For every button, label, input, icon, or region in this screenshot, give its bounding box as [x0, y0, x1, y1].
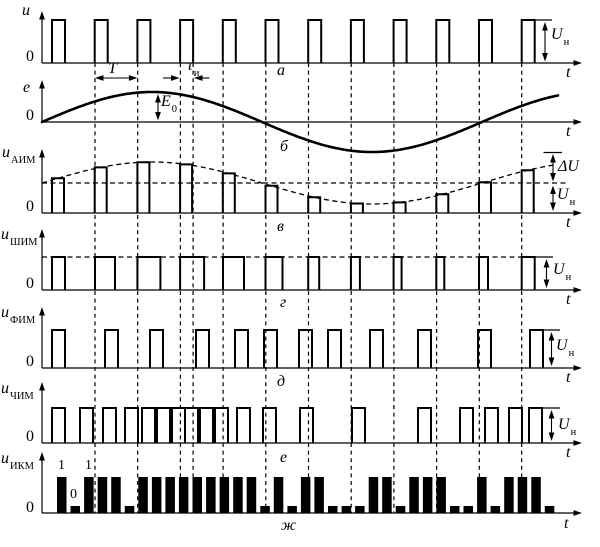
pcm-bit-1	[274, 477, 284, 513]
pulse	[223, 20, 236, 63]
pcm-bit-1	[57, 477, 67, 513]
pulse	[137, 162, 149, 213]
pcm-bit-0	[260, 506, 270, 513]
pulse	[196, 330, 209, 368]
pulse	[266, 186, 278, 213]
panel-ж	[39, 452, 582, 516]
pulse	[95, 20, 108, 63]
pcm-bit-1	[382, 477, 392, 513]
t-axis-label: t	[566, 370, 570, 386]
pcm-bit-1	[531, 477, 541, 513]
pulse	[479, 257, 488, 290]
pcm-bit-1	[518, 477, 528, 513]
panel-г	[39, 229, 582, 293]
pulse	[509, 408, 522, 443]
panel-б	[39, 80, 582, 152]
pulse	[172, 408, 185, 443]
pcm-bit-0	[491, 506, 501, 513]
pulse	[95, 257, 115, 290]
panel-label-e: е	[280, 450, 287, 466]
pulse	[479, 20, 492, 63]
panel-е	[39, 382, 582, 446]
pcm-bit-0	[545, 506, 555, 513]
pulse	[180, 257, 204, 290]
pulse	[150, 330, 163, 368]
pulse	[235, 330, 248, 368]
pcm-bit-1	[165, 477, 175, 513]
pulse	[522, 170, 534, 213]
e0-label: E0	[161, 94, 176, 114]
pulse-modulation-figure: u 0 t T τи Uн а e 0 t E0 б uАИМ 0 t ΔU U…	[0, 0, 600, 547]
pulse	[263, 408, 276, 443]
pulse	[180, 164, 192, 213]
pulse	[52, 330, 65, 368]
pulse	[157, 408, 170, 443]
pulse	[328, 330, 341, 368]
pulse	[478, 330, 491, 368]
pulse	[522, 20, 535, 63]
pulse	[200, 408, 213, 443]
bit-label-1: 1	[58, 459, 65, 473]
delta-u-label: ΔU	[558, 159, 579, 175]
pcm-bit-1	[220, 477, 230, 513]
pulse	[529, 408, 542, 443]
axis-label-u-shim: uШИМ	[1, 227, 37, 247]
un-label-c: Uн	[557, 187, 574, 207]
origin-label: 0	[26, 354, 34, 370]
pulse	[103, 408, 116, 443]
pcm-bit-1	[301, 477, 311, 513]
pulse	[105, 330, 118, 368]
pulse	[436, 20, 449, 63]
origin-label: 0	[26, 199, 34, 215]
pulse	[370, 330, 383, 368]
pcm-bit-1	[98, 477, 108, 513]
origin-label: 0	[26, 49, 34, 65]
pulse	[394, 202, 406, 213]
pulse	[137, 257, 160, 290]
pcm-bit-0	[464, 506, 474, 513]
pulse	[185, 408, 198, 443]
pulse	[394, 257, 402, 290]
pcm-bit-1	[247, 477, 257, 513]
pulse	[479, 182, 491, 213]
pcm-bit-1	[193, 477, 203, 513]
pulse	[237, 408, 250, 443]
pcm-bit-1	[477, 477, 487, 513]
un-label-e: Uн	[556, 338, 573, 358]
pcm-bit-0	[355, 506, 365, 513]
pulse	[95, 167, 107, 213]
t-axis-label: t	[566, 292, 570, 308]
pulse	[215, 408, 228, 443]
pulse	[137, 20, 150, 63]
bit-label-1b: 1	[85, 459, 92, 473]
axis-label-u-fim: uФИМ	[1, 305, 34, 325]
pcm-bit-1	[233, 477, 243, 513]
axis-label-e: e	[23, 80, 30, 96]
panel-label-b: б	[280, 139, 288, 155]
pcm-bit-1	[436, 477, 446, 513]
pcm-bit-1	[138, 477, 148, 513]
pulse	[522, 257, 535, 290]
pcm-bit-0	[396, 506, 406, 513]
pcm-bit-1	[111, 477, 121, 513]
t-axis-label: t	[566, 65, 570, 81]
un-label-d: Uн	[553, 262, 570, 282]
pulse	[142, 408, 155, 443]
pulse	[266, 257, 283, 290]
pulse	[436, 194, 448, 213]
pcm-bit-0	[71, 506, 81, 513]
pulse	[351, 20, 364, 63]
panel-д	[39, 307, 582, 371]
pulse	[223, 257, 244, 290]
panel-label-a: а	[277, 63, 285, 79]
pulse	[460, 408, 473, 443]
pcm-bit-0	[328, 506, 338, 513]
pulse	[52, 257, 65, 290]
un-label-f: Uн	[558, 417, 575, 437]
pcm-bit-1	[423, 477, 433, 513]
pcm-bit-1	[84, 477, 94, 513]
pulse	[125, 408, 138, 443]
pcm-bit-0	[287, 506, 297, 513]
pulse	[223, 173, 235, 213]
panel-в	[39, 149, 582, 216]
panel-label-zh: ж	[281, 518, 296, 534]
pulse	[418, 330, 431, 368]
pulse	[351, 257, 360, 290]
tau-label: τи	[187, 58, 198, 78]
t-axis-label: t	[566, 215, 570, 231]
pulse	[308, 20, 321, 63]
pulse	[308, 197, 320, 213]
pulse	[485, 408, 498, 443]
pulse	[266, 20, 279, 63]
pcm-bit-0	[125, 506, 135, 513]
pulse	[351, 204, 363, 214]
pulse	[80, 408, 93, 443]
pcm-bit-0	[342, 506, 352, 513]
pulse	[52, 408, 65, 443]
origin-label: 0	[26, 429, 34, 445]
pcm-bit-1	[409, 477, 419, 513]
pulse	[418, 408, 431, 443]
origin-label: 0	[26, 276, 34, 292]
pulse	[299, 330, 312, 368]
pulse	[530, 330, 543, 368]
pcm-bit-1	[369, 477, 379, 513]
panel-label-g: г	[280, 295, 286, 311]
pulse	[52, 20, 65, 63]
axis-label-u-ikm: uИКМ	[1, 451, 33, 471]
pulse	[352, 408, 365, 443]
panel-label-v: в	[277, 219, 284, 235]
pcm-bit-1	[179, 477, 189, 513]
pulse	[436, 257, 444, 290]
panel-label-d: д	[277, 374, 285, 390]
t-axis-label: t	[566, 445, 570, 461]
axis-label-u: u	[22, 3, 30, 19]
pulse	[300, 408, 313, 443]
pcm-bit-1	[314, 477, 324, 513]
axis-label-u-chim: uЧИМ	[1, 381, 33, 401]
pcm-bit-1	[504, 477, 514, 513]
t-axis-label: t	[564, 516, 568, 532]
pulse	[308, 257, 319, 290]
panel-а	[39, 11, 582, 81]
un-label-a: Uн	[551, 27, 568, 47]
pcm-bit-1	[206, 477, 216, 513]
axis-label-u-aim: uАИМ	[2, 145, 35, 165]
bit-label-0: 0	[70, 488, 77, 502]
pcm-bit-1	[152, 477, 162, 513]
origin-label: 0	[26, 108, 34, 124]
pulse	[394, 20, 407, 63]
period-T-label: T	[108, 61, 117, 77]
t-axis-label: t	[566, 124, 570, 140]
pcm-bit-0	[450, 506, 460, 513]
origin-label: 0	[26, 500, 34, 516]
